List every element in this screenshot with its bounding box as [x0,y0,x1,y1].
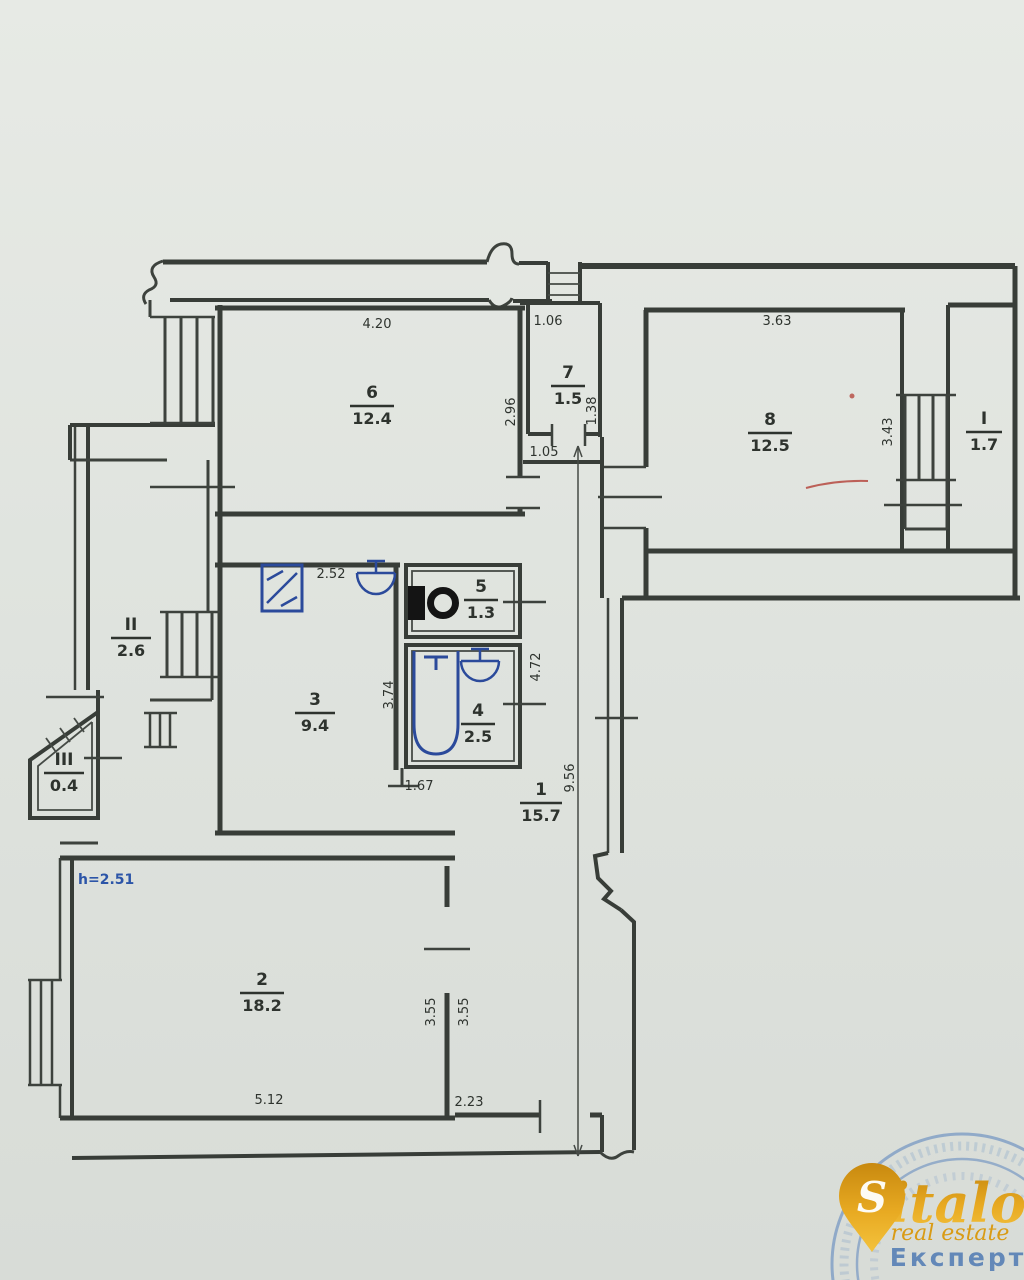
room-area: 12.4 [352,409,391,428]
dim-room3-door: 1.67 [405,779,434,794]
room-area: 1.7 [970,435,998,454]
room-area: 1.5 [554,389,582,408]
dim-room8-depth: 3.43 [881,418,896,447]
room-number: 5 [475,577,487,597]
room-area: 2.6 [117,641,145,660]
room-area: 18.2 [242,996,281,1015]
scanned-floor-plan-page: 6 12.4 7 1.5 8 12.5 I 1.7 II 2.6 3 9.4 [0,0,1024,1280]
dim-corridor-depth: 3.55 [457,998,472,1027]
room-number: 3 [309,690,321,710]
stamp-word: Експерт [890,1243,1024,1272]
room-number: III [55,750,74,770]
room-area: 12.5 [750,436,789,455]
room-number: 6 [366,383,378,403]
dim-corridor-length: 9.56 [563,764,578,793]
room-area: 15.7 [521,806,560,825]
dim-room8-width: 3.63 [763,314,792,329]
dim-room3-depth: 3.74 [382,681,397,710]
paper-background [0,0,1024,1280]
dim-room7-depth: 1.38 [585,397,600,426]
room-area: 9.4 [301,716,329,735]
dim-room6-depth: 2.96 [504,398,519,427]
room-number: 7 [562,363,574,383]
room-number: II [125,615,138,635]
dim-room7-width: 1.06 [534,314,563,329]
logo-pin-letter: S [857,1173,887,1222]
dim-room2-depth: 3.55 [424,998,439,1027]
dim-room6-width: 4.20 [363,317,392,332]
room-number: 2 [256,970,268,990]
floor-plan: 6 12.4 7 1.5 8 12.5 I 1.7 II 2.6 3 9.4 [0,0,1024,1280]
room-number: 8 [764,410,776,430]
room-number: I [981,409,987,429]
room-area: 1.3 [467,603,495,622]
room-area: 2.5 [464,727,492,746]
room-area: 0.4 [50,776,78,795]
dim-room2-width: 5.12 [255,1093,284,1108]
dim-corridor-width: 2.23 [455,1095,484,1110]
room-number: 4 [472,701,484,721]
dim-wet-block: 4.72 [529,653,544,682]
room-number: 1 [535,780,547,800]
ceiling-height-note: h=2.51 [78,872,134,888]
dim-room7-door: 1.05 [530,445,559,460]
dim-room3-width: 2.52 [317,567,346,582]
